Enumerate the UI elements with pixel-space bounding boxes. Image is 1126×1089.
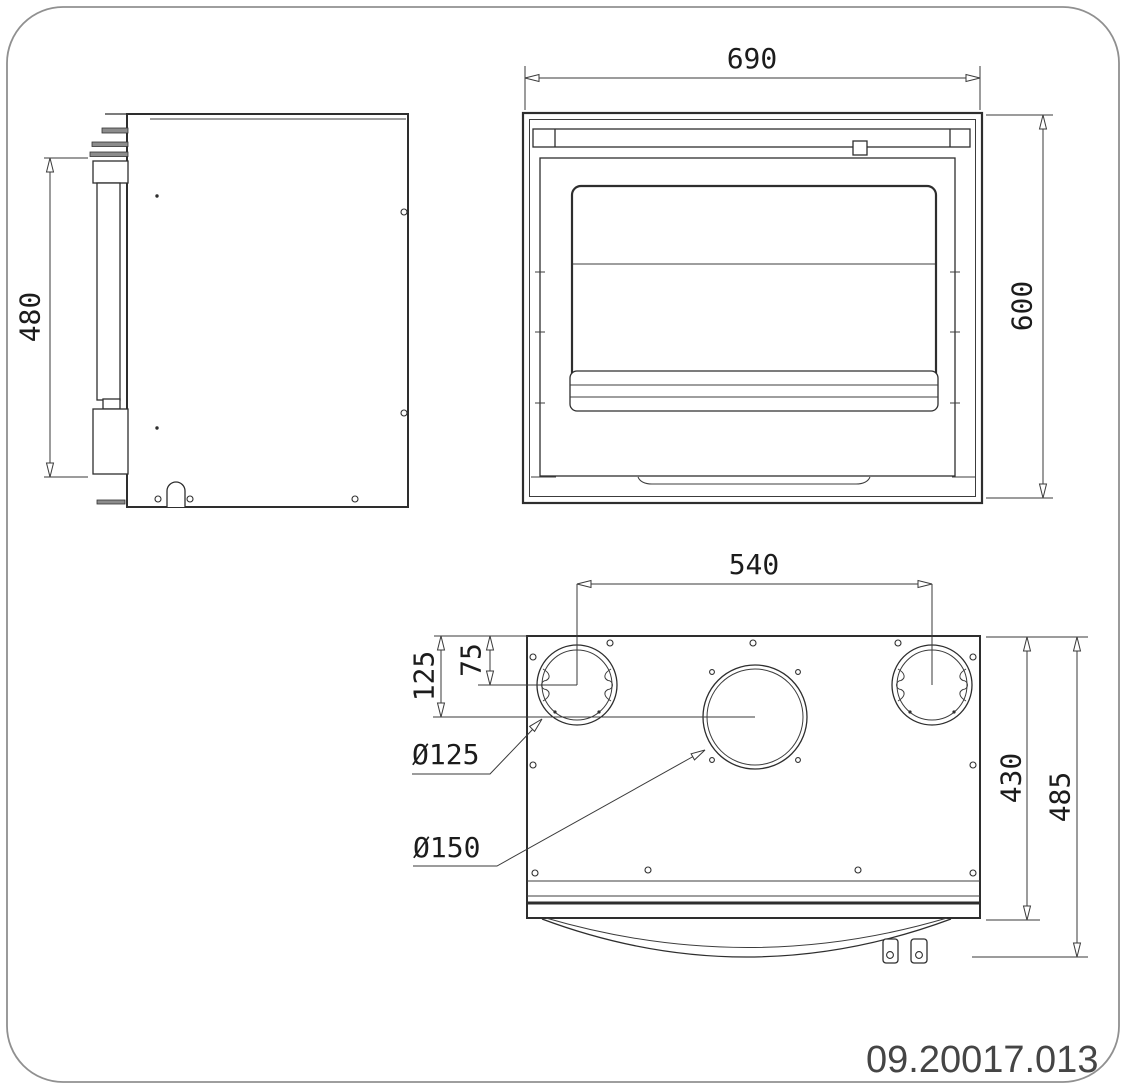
handle-ledge xyxy=(570,371,938,411)
crimp-dot xyxy=(908,710,911,713)
screw-hole xyxy=(155,496,161,502)
mounting-bracket xyxy=(883,939,898,963)
dimension-600: 600 xyxy=(986,115,1053,498)
technical-drawing-canvas: 480 690 xyxy=(0,0,1126,1089)
dimension-690: 690 xyxy=(525,42,980,110)
bottom-lip xyxy=(97,500,125,504)
arrowhead xyxy=(1024,906,1031,920)
rivet-dot xyxy=(155,426,158,429)
dimension-75: 75 xyxy=(455,636,494,685)
frame-header xyxy=(93,161,128,183)
drawing-sheet: 480 690 xyxy=(0,0,1126,1089)
ledge-outline xyxy=(570,371,938,411)
arrowhead xyxy=(1024,637,1031,651)
arrowhead xyxy=(1074,637,1081,651)
dimension-125: 125 xyxy=(408,636,445,717)
screw-hole xyxy=(895,640,901,646)
label-dia-125: Ø125 xyxy=(412,719,542,774)
convection-fins xyxy=(90,128,128,157)
dim-label-125: 125 xyxy=(408,651,441,702)
arrowhead xyxy=(966,75,980,82)
dimension-lines xyxy=(44,158,88,477)
crimp-dot xyxy=(597,710,600,713)
arrowhead xyxy=(1040,115,1047,129)
front-frame-profile xyxy=(93,161,128,504)
screw-hole xyxy=(970,654,976,660)
screw-hole xyxy=(710,670,715,675)
screw-hole xyxy=(645,867,651,873)
door-step xyxy=(103,399,120,409)
dim-label-600: 600 xyxy=(1006,281,1039,332)
frame-bottom xyxy=(93,409,128,474)
dia-125-text: Ø125 xyxy=(412,738,479,771)
crimp-dot xyxy=(553,710,556,713)
vent-strip xyxy=(533,129,970,147)
screw-hole xyxy=(401,209,407,215)
arrowhead xyxy=(487,636,494,650)
door-profile xyxy=(97,183,120,400)
air-control-latch xyxy=(853,141,867,155)
arrowhead xyxy=(438,703,445,717)
screw-hole xyxy=(530,762,536,768)
dim-label-75: 75 xyxy=(455,643,488,677)
arrowhead xyxy=(438,636,445,650)
dim-label-430: 430 xyxy=(995,753,1028,804)
screw-hole xyxy=(710,758,715,763)
arrowhead xyxy=(487,671,494,685)
arrowhead xyxy=(47,463,54,477)
screw-hole xyxy=(970,762,976,768)
dimension-480: 480 xyxy=(14,158,89,477)
top-body xyxy=(527,636,980,918)
screw-hole xyxy=(970,870,976,876)
drawing-number: 09.20017.013 xyxy=(866,1039,1098,1081)
front-view: 690 600 xyxy=(523,42,1053,503)
bracket-hole xyxy=(916,952,923,959)
arrowhead xyxy=(577,581,591,588)
bracket-hole xyxy=(887,952,894,959)
dim-label-690: 690 xyxy=(727,42,778,75)
mounting-brackets xyxy=(883,939,927,963)
side-view: 480 xyxy=(14,114,409,507)
screw-hole xyxy=(187,496,193,502)
arrowhead xyxy=(918,581,932,588)
screw-hole xyxy=(607,640,613,646)
dia-150-text: Ø150 xyxy=(413,831,480,864)
screw-hole xyxy=(855,867,861,873)
screw-hole xyxy=(532,870,538,876)
mounting-bracket xyxy=(911,939,927,963)
fin xyxy=(102,128,128,133)
dim-label-540: 540 xyxy=(729,548,780,581)
keyhole-slot xyxy=(167,482,185,507)
screw-hole xyxy=(796,670,801,675)
screw-hole xyxy=(530,654,536,660)
side-body xyxy=(127,114,408,507)
dim-label-485: 485 xyxy=(1044,772,1077,823)
screw-hole xyxy=(796,758,801,763)
fin xyxy=(90,152,128,157)
arrowhead xyxy=(525,75,539,82)
screw-hole xyxy=(352,496,358,502)
arrowhead xyxy=(47,158,54,172)
top-view: 540 125 75 Ø125 Ø150 xyxy=(408,548,1089,963)
fin xyxy=(92,142,128,147)
arrowhead xyxy=(1040,484,1047,498)
screw-hole xyxy=(401,410,407,416)
screw-hole xyxy=(750,640,756,646)
arrowhead xyxy=(1074,943,1081,957)
crimp-dot xyxy=(952,710,955,713)
rivet-dot xyxy=(155,194,158,197)
dim-label-480: 480 xyxy=(14,292,47,343)
